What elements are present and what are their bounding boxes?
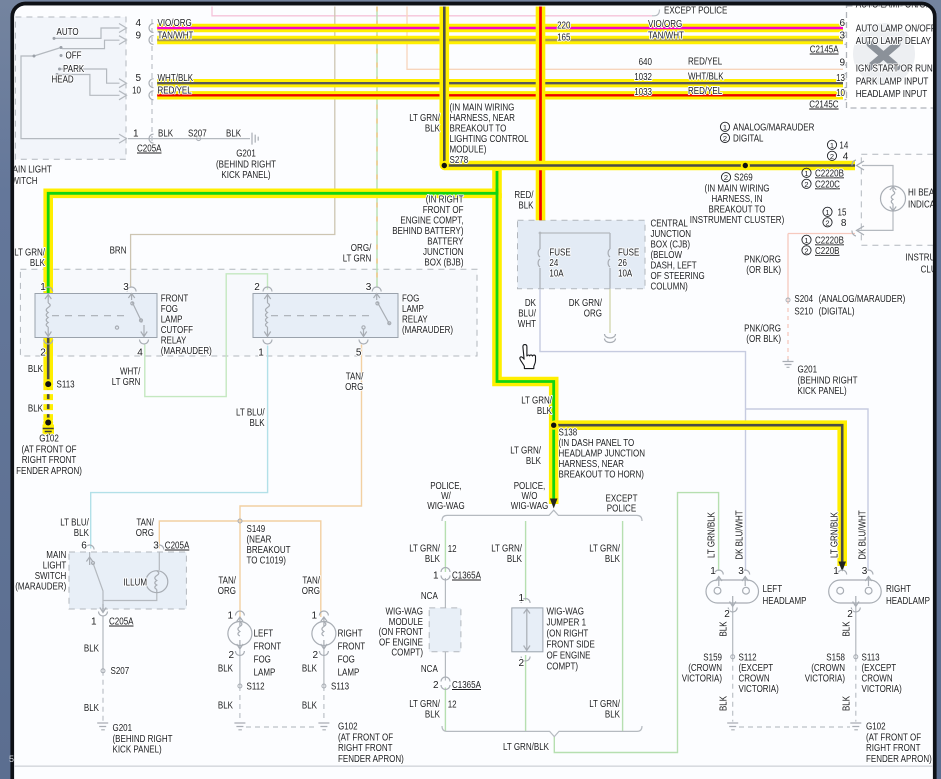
svg-text:HEAD: HEAD <box>52 74 74 85</box>
svg-text:ORG/: ORG/ <box>351 243 372 254</box>
svg-text:BLK: BLK <box>218 664 233 675</box>
svg-text:FRONT: FRONT <box>254 642 282 653</box>
svg-text:G201: G201 <box>113 723 133 734</box>
svg-text:TAN/: TAN/ <box>302 576 320 587</box>
svg-text:LT GRN: LT GRN <box>343 254 372 265</box>
svg-text:1: 1 <box>258 348 264 359</box>
svg-text:(IN RIGHT: (IN RIGHT <box>426 195 464 206</box>
svg-text:BATTERY: BATTERY <box>427 237 463 248</box>
svg-text:C220B: C220B <box>815 246 840 257</box>
svg-text:(OR BLK): (OR BLK) <box>746 265 781 276</box>
svg-text:RIGHT FRONT: RIGHT FRONT <box>338 743 393 754</box>
svg-text:TAN/: TAN/ <box>346 372 364 383</box>
svg-text:(EXCEPT: (EXCEPT <box>862 663 897 674</box>
svg-text:LEFT: LEFT <box>254 629 274 640</box>
svg-text:ILLUM: ILLUM <box>123 578 147 589</box>
svg-text:HARNESS, NEAR: HARNESS, NEAR <box>559 459 624 470</box>
svg-text:S269: S269 <box>734 173 753 184</box>
svg-text:KICK PANEL): KICK PANEL) <box>113 745 162 756</box>
svg-text:FUSE: FUSE <box>618 247 640 258</box>
svg-text:VICTORIA): VICTORIA) <box>805 674 845 685</box>
svg-text:1: 1 <box>133 129 139 140</box>
svg-text:FOG: FOG <box>402 294 419 305</box>
svg-text:JUMPER 1: JUMPER 1 <box>547 618 587 629</box>
svg-text:HEADLAMP INPUT: HEADLAMP INPUT <box>856 89 927 100</box>
svg-text:BEHIND BATTERY): BEHIND BATTERY) <box>392 226 463 237</box>
svg-text:24: 24 <box>549 258 558 269</box>
svg-text:C205A: C205A <box>137 144 162 155</box>
svg-text:DK: DK <box>525 298 536 309</box>
svg-text:1: 1 <box>40 282 46 293</box>
svg-text:NCA: NCA <box>421 591 438 602</box>
svg-text:1: 1 <box>723 123 727 132</box>
svg-text:COMPT): COMPT) <box>547 662 579 673</box>
svg-text:CENTRAL: CENTRAL <box>651 219 689 230</box>
svg-text:1: 1 <box>804 236 808 245</box>
svg-text:TAN/: TAN/ <box>136 518 154 529</box>
svg-text:WIG-WAG: WIG-WAG <box>547 607 585 618</box>
svg-text:SWITCH: SWITCH <box>35 571 67 582</box>
svg-text:3: 3 <box>862 566 868 577</box>
svg-text:(IN MAIN WIRING: (IN MAIN WIRING <box>705 183 770 194</box>
svg-text:12: 12 <box>448 700 457 711</box>
svg-text:BLK: BLK <box>28 404 43 415</box>
svg-text:WHT: WHT <box>518 319 536 330</box>
svg-text:BREAKOUT TO: BREAKOUT TO <box>709 204 766 215</box>
svg-text:OF STEERING: OF STEERING <box>651 271 705 282</box>
svg-text:LT GRN: LT GRN <box>112 377 141 388</box>
svg-text:LT BLU/: LT BLU/ <box>236 408 265 419</box>
svg-text:26: 26 <box>618 258 627 269</box>
svg-text:S158: S158 <box>826 653 845 664</box>
svg-text:(IN MAIN WIRING: (IN MAIN WIRING <box>450 103 515 114</box>
svg-text:RIGHT: RIGHT <box>338 629 363 640</box>
svg-text:1033: 1033 <box>634 87 652 98</box>
svg-text:2: 2 <box>228 650 234 661</box>
svg-text:S210: S210 <box>794 307 813 318</box>
svg-text:FRONT SIDE: FRONT SIDE <box>547 640 596 651</box>
svg-text:S159: S159 <box>703 653 722 664</box>
svg-text:RIGHT FRONT: RIGHT FRONT <box>22 455 77 466</box>
svg-text:C2220B: C2220B <box>815 168 844 179</box>
svg-text:4: 4 <box>843 151 849 162</box>
svg-text:RED/YEL: RED/YEL <box>688 86 723 97</box>
svg-text:WHT/BLK: WHT/BLK <box>688 72 724 83</box>
svg-text:LT GRN/: LT GRN/ <box>510 446 541 457</box>
svg-text:FOG: FOG <box>338 655 355 666</box>
svg-text:(CROWN: (CROWN <box>811 663 845 674</box>
svg-text:AUTO: AUTO <box>57 27 79 38</box>
svg-text:BLK: BLK <box>302 664 317 675</box>
svg-text:(IN DASH PANEL TO: (IN DASH PANEL TO <box>559 438 635 449</box>
svg-text:OFF: OFF <box>66 51 82 62</box>
svg-text:EXCEPT POLICE: EXCEPT POLICE <box>664 6 728 17</box>
svg-text:S204: S204 <box>794 294 813 305</box>
svg-text:ORG: ORG <box>218 586 236 597</box>
svg-text:DK BLU/WHT: DK BLU/WHT <box>858 510 869 559</box>
svg-text:OF ENGINE: OF ENGINE <box>547 651 591 662</box>
svg-text:LT GRN/: LT GRN/ <box>491 544 522 555</box>
svg-text:COLUMN): COLUMN) <box>651 282 688 293</box>
svg-text:BLK: BLK <box>158 129 173 140</box>
svg-text:LT GRN/: LT GRN/ <box>521 396 552 407</box>
svg-text:LAMP: LAMP <box>338 668 360 679</box>
svg-text:AUTO LAMP DELAY: AUTO LAMP DELAY <box>856 36 931 47</box>
svg-text:ANALOG/MARAUDER: ANALOG/MARAUDER <box>733 122 814 133</box>
svg-text:LAMP: LAMP <box>402 304 424 315</box>
svg-text:165: 165 <box>557 33 571 44</box>
svg-text:S207: S207 <box>111 666 130 677</box>
svg-text:220: 220 <box>557 21 571 32</box>
svg-text:2: 2 <box>724 609 730 620</box>
svg-text:IGN START OR RUN: IGN START OR RUN <box>856 63 933 74</box>
svg-text:(AT FRONT OF: (AT FRONT OF <box>21 444 76 455</box>
svg-text:FOG: FOG <box>161 304 178 315</box>
svg-text:NCA: NCA <box>421 664 438 675</box>
svg-text:BRN: BRN <box>110 246 127 257</box>
svg-text:(AT FRONT OF: (AT FRONT OF <box>338 732 393 743</box>
svg-text:3: 3 <box>153 541 159 552</box>
svg-text:LAMP: LAMP <box>254 668 276 679</box>
svg-text:15: 15 <box>838 207 847 218</box>
svg-text:3: 3 <box>123 282 129 293</box>
svg-text:POLICE: POLICE <box>607 503 637 514</box>
svg-text:2: 2 <box>804 180 808 189</box>
svg-text:FUSE: FUSE <box>549 247 571 258</box>
svg-text:2: 2 <box>724 173 728 182</box>
svg-text:(EXCEPT: (EXCEPT <box>739 663 774 674</box>
svg-text:(MARAUDER): (MARAUDER) <box>15 582 66 593</box>
svg-text:S113: S113 <box>57 380 75 391</box>
svg-text:DK GRN/: DK GRN/ <box>569 298 602 309</box>
svg-text:C2145C: C2145C <box>809 100 838 111</box>
svg-text:RED/YEL: RED/YEL <box>688 57 723 68</box>
svg-text:RIGHT FRONT: RIGHT FRONT <box>866 743 921 754</box>
svg-text:S138: S138 <box>559 428 578 439</box>
svg-text:G102: G102 <box>39 434 59 445</box>
svg-text:WIG-WAG: WIG-WAG <box>427 501 465 512</box>
svg-text:LT GRN/: LT GRN/ <box>589 544 620 555</box>
svg-text:2: 2 <box>312 650 318 661</box>
svg-text:10: 10 <box>836 88 845 99</box>
svg-text:S113: S113 <box>331 682 349 693</box>
svg-text:1: 1 <box>833 566 839 577</box>
svg-text:BLK: BLK <box>507 554 522 565</box>
svg-text:RIGHT: RIGHT <box>886 584 911 595</box>
svg-text:INSTRUMENT CLUSTER): INSTRUMENT CLUSTER) <box>690 215 785 226</box>
svg-text:BOX (CJB): BOX (CJB) <box>651 240 691 251</box>
svg-text:DIGITAL: DIGITAL <box>733 133 764 144</box>
svg-text:BLK: BLK <box>518 201 533 212</box>
svg-text:WHT/: WHT/ <box>120 367 141 378</box>
svg-text:2: 2 <box>40 348 46 359</box>
svg-text:BLU/: BLU/ <box>518 309 536 320</box>
svg-text:ORG: ORG <box>302 586 320 597</box>
svg-text:S207: S207 <box>188 128 207 139</box>
svg-text:G201: G201 <box>798 365 818 376</box>
svg-text:9: 9 <box>135 31 141 42</box>
svg-text:BLK: BLK <box>841 621 852 636</box>
svg-text:BLK: BLK <box>28 364 43 375</box>
svg-text:4: 4 <box>137 348 143 359</box>
svg-text:1: 1 <box>710 566 716 577</box>
svg-text:LT GRN/: LT GRN/ <box>409 544 440 555</box>
svg-text:BLK: BLK <box>526 456 541 467</box>
svg-text:1: 1 <box>91 617 97 628</box>
svg-text:JUNCTION: JUNCTION <box>423 247 464 258</box>
svg-text:C205A: C205A <box>109 617 134 628</box>
svg-text:1: 1 <box>311 611 317 622</box>
svg-text:BLK: BLK <box>425 554 440 565</box>
svg-text:2: 2 <box>433 680 439 691</box>
svg-text:HEADLAMP: HEADLAMP <box>886 596 930 607</box>
svg-text:CUTOFF: CUTOFF <box>161 325 193 336</box>
svg-text:VIO/ORG: VIO/ORG <box>648 19 682 30</box>
svg-text:(BEHIND RIGHT: (BEHIND RIGHT <box>113 734 173 745</box>
svg-text:MODULE): MODULE) <box>450 145 487 156</box>
svg-text:BLK: BLK <box>74 528 89 539</box>
svg-text:3: 3 <box>738 566 744 577</box>
svg-text:C220C: C220C <box>815 179 840 190</box>
svg-text:1: 1 <box>825 208 829 217</box>
svg-text:BLK: BLK <box>537 406 552 417</box>
svg-text:ORG: ORG <box>136 528 154 539</box>
svg-text:BLK: BLK <box>30 258 45 269</box>
svg-text:BLK: BLK <box>841 696 852 711</box>
svg-text:BREAKOUT TO HORN): BREAKOUT TO HORN) <box>559 470 644 481</box>
svg-text:S278: S278 <box>450 155 469 166</box>
svg-text:S112: S112 <box>739 653 757 664</box>
svg-text:BLK: BLK <box>425 710 440 721</box>
svg-text:10A: 10A <box>618 268 632 279</box>
svg-text:3: 3 <box>366 282 372 293</box>
svg-text:BREAKOUT: BREAKOUT <box>247 545 291 556</box>
svg-text:1: 1 <box>830 141 834 150</box>
svg-text:DK BLU/WHT: DK BLU/WHT <box>735 510 746 559</box>
svg-text:COMPT): COMPT) <box>391 648 423 659</box>
svg-text:FOG: FOG <box>254 655 271 666</box>
svg-text:MAIN: MAIN <box>46 550 66 561</box>
svg-text:AUTO LAMP ON/OFF: AUTO LAMP ON/OFF <box>856 24 936 35</box>
svg-text:13: 13 <box>836 73 845 84</box>
svg-text:(NEAR: (NEAR <box>247 535 272 546</box>
svg-text:4: 4 <box>135 18 141 29</box>
svg-text:(MARAUDER): (MARAUDER) <box>161 346 212 357</box>
svg-text:VICTORIA): VICTORIA) <box>862 684 902 695</box>
svg-text:LT BLU/: LT BLU/ <box>60 518 89 529</box>
svg-text:ORG: ORG <box>345 382 363 393</box>
svg-text:G102: G102 <box>866 722 886 733</box>
svg-text:5: 5 <box>356 348 362 359</box>
svg-text:LT GRN/BLK: LT GRN/BLK <box>503 742 549 753</box>
svg-text:HEADLAMP: HEADLAMP <box>763 596 807 607</box>
svg-text:12: 12 <box>448 544 457 555</box>
svg-text:BLK: BLK <box>84 644 99 655</box>
svg-text:BREAKOUT TO: BREAKOUT TO <box>450 124 507 135</box>
svg-text:JUNCTION: JUNCTION <box>651 229 692 240</box>
svg-text:LIGHT: LIGHT <box>43 561 67 572</box>
svg-text:HARNESS, IN: HARNESS, IN <box>711 194 762 205</box>
svg-text:2: 2 <box>804 246 808 255</box>
svg-text:RELAY: RELAY <box>161 336 187 347</box>
svg-text:RED/: RED/ <box>514 190 533 201</box>
svg-text:1: 1 <box>433 571 439 582</box>
svg-text:(ON RIGHT: (ON RIGHT <box>547 629 589 640</box>
svg-text:C205A: C205A <box>165 541 190 552</box>
svg-text:TAN/: TAN/ <box>218 576 236 587</box>
svg-text:PARK: PARK <box>63 64 84 75</box>
svg-text:C1365A: C1365A <box>452 680 481 691</box>
svg-text:PNK/ORG: PNK/ORG <box>744 255 781 266</box>
svg-text:6: 6 <box>81 541 87 552</box>
svg-text:2: 2 <box>254 282 260 293</box>
svg-text:BLK: BLK <box>605 554 620 565</box>
svg-text:2: 2 <box>723 134 727 143</box>
svg-text:1: 1 <box>518 593 524 604</box>
svg-text:PARK LAMP INPUT: PARK LAMP INPUT <box>856 77 929 88</box>
svg-text:RED/YEL: RED/YEL <box>158 86 193 97</box>
svg-text:9: 9 <box>839 58 845 69</box>
svg-text:HARNESS, NEAR: HARNESS, NEAR <box>450 113 515 124</box>
svg-text:S113: S113 <box>862 653 880 664</box>
svg-text:3: 3 <box>839 31 845 42</box>
svg-text:C2145A: C2145A <box>810 45 839 56</box>
svg-text:(CROWN: (CROWN <box>688 663 722 674</box>
svg-text:6: 6 <box>839 18 845 29</box>
svg-text:(BEHIND RIGHT: (BEHIND RIGHT <box>798 375 858 386</box>
svg-text:CROWN: CROWN <box>862 674 893 685</box>
svg-text:(DIGITAL): (DIGITAL) <box>819 307 855 318</box>
svg-text:G102: G102 <box>338 722 358 733</box>
svg-text:LT GRN/: LT GRN/ <box>409 113 440 124</box>
svg-text:WIG-WAG: WIG-WAG <box>511 501 549 512</box>
svg-text:RELAY: RELAY <box>402 315 428 326</box>
svg-text:S112: S112 <box>247 682 265 693</box>
svg-text:VICTORIA): VICTORIA) <box>739 684 779 695</box>
svg-text:BLK: BLK <box>718 696 729 711</box>
svg-text:BLK: BLK <box>226 129 241 140</box>
svg-text:CROWN: CROWN <box>739 674 770 685</box>
svg-text:(BEHIND RIGHT: (BEHIND RIGHT <box>216 159 276 170</box>
svg-text:BLK: BLK <box>718 621 729 636</box>
svg-text:(ANALOG/MARAUDER): (ANALOG/MARAUDER) <box>819 294 906 305</box>
svg-text:10A: 10A <box>549 268 563 279</box>
svg-text:FENDER APRON): FENDER APRON) <box>16 466 82 477</box>
svg-text:KICK PANEL): KICK PANEL) <box>798 386 847 397</box>
svg-text:TAN/WHT: TAN/WHT <box>648 31 684 42</box>
svg-text:FRONT OF: FRONT OF <box>423 205 464 216</box>
svg-text:640: 640 <box>639 57 653 68</box>
svg-text:LT GRN/: LT GRN/ <box>14 248 45 259</box>
svg-text:FENDER APRON): FENDER APRON) <box>866 754 932 765</box>
svg-text:VIO/ORG: VIO/ORG <box>158 18 192 29</box>
svg-text:5: 5 <box>135 73 141 84</box>
svg-text:LT GRN/BLK: LT GRN/BLK <box>830 512 841 558</box>
svg-text:LEFT: LEFT <box>763 584 783 595</box>
svg-text:LT GRN/: LT GRN/ <box>589 699 620 710</box>
svg-text:2: 2 <box>825 218 829 227</box>
svg-text:1032: 1032 <box>634 72 652 83</box>
svg-text:BLK: BLK <box>84 703 99 714</box>
svg-text:FRONT: FRONT <box>161 294 189 305</box>
svg-text:(AT FRONT OF: (AT FRONT OF <box>866 732 921 743</box>
svg-text:BLK: BLK <box>425 124 440 135</box>
svg-text:5: 5 <box>9 754 14 764</box>
svg-text:BLK: BLK <box>218 701 233 712</box>
svg-text:14: 14 <box>839 140 848 151</box>
svg-text:PNK/ORG: PNK/ORG <box>744 324 781 335</box>
svg-text:1: 1 <box>804 169 808 178</box>
svg-text:WHT/BLK: WHT/BLK <box>158 73 194 84</box>
svg-text:BOX (BJB): BOX (BJB) <box>424 258 463 269</box>
svg-text:LT GRN/: LT GRN/ <box>409 699 440 710</box>
svg-text:G201: G201 <box>236 149 256 160</box>
svg-text:LT GRN/BLK: LT GRN/BLK <box>707 512 718 558</box>
svg-text:10: 10 <box>132 86 141 97</box>
svg-text:S149: S149 <box>247 524 266 535</box>
svg-text:8: 8 <box>841 218 847 229</box>
svg-text:C2220B: C2220B <box>815 235 844 246</box>
svg-text:ENGINE COMPT,: ENGINE COMPT, <box>400 216 463 227</box>
svg-text:DASH, LEFT: DASH, LEFT <box>651 261 697 272</box>
svg-text:(OR BLK): (OR BLK) <box>746 334 781 345</box>
svg-text:ORG: ORG <box>584 309 602 320</box>
svg-text:VICTORIA): VICTORIA) <box>682 674 722 685</box>
svg-text:C1365A: C1365A <box>452 571 481 582</box>
svg-text:2: 2 <box>847 609 853 620</box>
svg-text:(BELOW: (BELOW <box>651 250 683 261</box>
svg-text:HEADLAMP JUNCTION: HEADLAMP JUNCTION <box>559 449 646 460</box>
svg-text:(MARAUDER): (MARAUDER) <box>402 325 453 336</box>
svg-text:2: 2 <box>518 658 524 669</box>
svg-text:2: 2 <box>830 152 834 161</box>
svg-text:LIGHTING CONTROL: LIGHTING CONTROL <box>450 134 529 145</box>
svg-text:1: 1 <box>227 611 233 622</box>
svg-text:FRONT: FRONT <box>338 642 366 653</box>
svg-text:BLK: BLK <box>302 701 317 712</box>
svg-text:TO C1019): TO C1019) <box>247 556 286 567</box>
svg-text:BLK: BLK <box>250 418 265 429</box>
svg-text:TAN/WHT: TAN/WHT <box>158 31 194 42</box>
svg-text:BLK: BLK <box>605 710 620 721</box>
svg-text:FENDER APRON): FENDER APRON) <box>338 754 404 765</box>
svg-text:LAMP: LAMP <box>161 315 183 326</box>
svg-text:KICK PANEL): KICK PANEL) <box>221 170 270 181</box>
